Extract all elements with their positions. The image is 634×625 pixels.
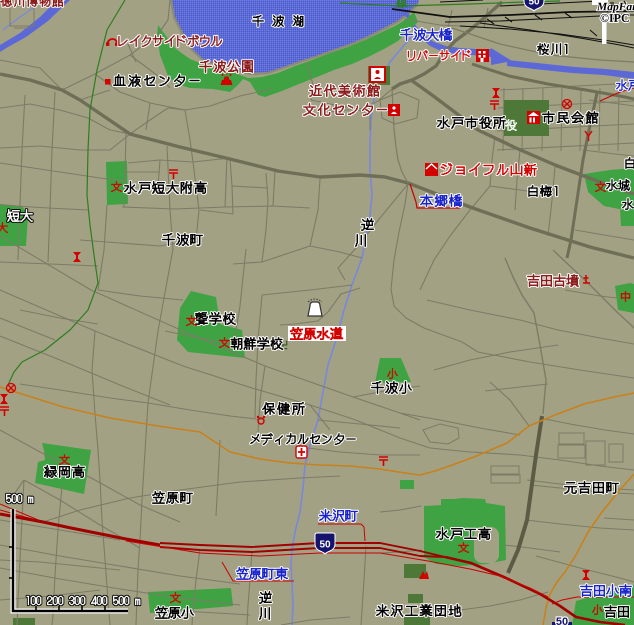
svg-text:50: 50: [319, 540, 331, 551]
svg-text:50: 50: [556, 616, 568, 625]
svg-text:50: 50: [528, 0, 540, 8]
